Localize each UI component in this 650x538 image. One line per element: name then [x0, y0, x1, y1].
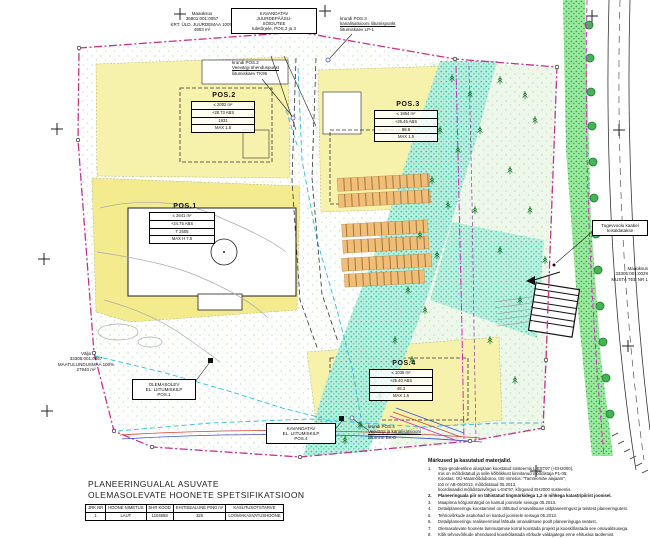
parcel-label-e: Maaüksus 33305:001:0029 MUSTA TEE NR 1	[596, 266, 648, 282]
el-cabinet-pos4-box: KAVANDATAV EL. LIITUMISKILP POS.4	[266, 423, 336, 444]
note-number: 2.	[428, 493, 435, 498]
note-number: 6.	[428, 519, 435, 524]
pos3-label: POS.3	[380, 102, 436, 107]
note-item: 1. Topo-geodeetiline alusplaan koostatud…	[428, 466, 648, 491]
pos3-spec-row: MAX 1.5	[375, 133, 437, 141]
note-item: 7. Olemasolevate hoonete lammutamise kor…	[428, 526, 648, 531]
site-plan-sheet: Maaüksus 36801:001:0057 KRT. ÜLD. JUURDE…	[0, 0, 650, 538]
spec-header-cell: EHR KOOD	[146, 505, 173, 513]
parcel-w-area: 27940 m²	[44, 367, 128, 372]
note-text: Planeeringuala piir on tähistatud tingmä…	[438, 493, 612, 498]
pos3-spec-table: ≤ 1854 m² +26.45 ABS 88.8 MAX 1.5	[374, 110, 438, 142]
sheet-title: PLANEERINGUALAL ASUVATE OLEMASOLEVATE HO…	[88, 479, 348, 501]
water-pos4-line: liitumine BK-0	[368, 435, 460, 440]
pos1-spec-row: T 2505	[150, 228, 214, 236]
spec-cell: 1104658	[146, 512, 173, 520]
pos3-spec-row: +26.45 ABS	[375, 118, 437, 126]
spec-cell: LAUT	[106, 512, 146, 520]
site-plan-drawing	[0, 0, 650, 538]
pos1-spec-row: ≤ 2641 m²	[150, 213, 214, 220]
notes-block: Märkused ja kasutatud materjalid. 1. Top…	[428, 459, 648, 538]
spec-cell: 325	[173, 512, 225, 520]
spec-header-cell: KASUTUSOTSTARVE	[226, 505, 283, 513]
water-connection-label-pos2: krundi POS.2 Veevärgi ühenduspunkt liitu…	[232, 60, 304, 76]
note-text: Maapinna kõrgusmärgid on kantud joonisel…	[438, 500, 556, 505]
pos1-spec-row: +24.75 ABS	[150, 220, 214, 228]
note-number: 7.	[428, 526, 435, 531]
pos4-spec-row: 48.3	[370, 385, 432, 393]
note-text: Detailplaneeringu koostamisel on lähtutu…	[438, 506, 628, 511]
water-pos2-line: liitumiskaev TK95	[232, 71, 304, 76]
spec-cell: 1	[86, 512, 106, 520]
access-road-callout-box: KAVANDATAV JUURDEPÄÄSU- SÕIDUTEE tuletõr…	[231, 8, 317, 34]
note-item: 5. Tehnovõrkude asukohad on kantud jooni…	[428, 513, 648, 518]
el-cabinet-pos4-symbol	[339, 416, 344, 421]
note-number: 3.	[428, 500, 435, 505]
note-number: 8.	[428, 532, 435, 537]
spec-header-cell: HOONE NIMETUS	[106, 505, 146, 513]
sewer-pos3-line: liitumiskaev LP-1	[340, 27, 422, 32]
pos4-label: POS.4	[376, 361, 432, 366]
el-cabinet-pos1-box: OLEMASOLEV EL. LIITUMISKILP POS.1	[132, 379, 196, 400]
spec-header-row: JRK NR HOONE NIMETUS EHR KOOD EHITISEALU…	[86, 505, 284, 513]
water-connection-label-pos4: krundi POS.4 Veevärgi ja kanalisatsiooni…	[368, 424, 460, 440]
pos3-spec-row: ≤ 1854 m²	[375, 111, 437, 118]
pos2-spec-row: +28.73 ABS	[192, 109, 254, 117]
note-item: 8. Kõik tehnovõrkude ühendused kooskõlas…	[428, 532, 648, 537]
pos2-spec-row: ≤ 2002 m²	[192, 102, 254, 109]
cabinet-pos1-line: POS.1	[135, 392, 193, 397]
parcel-e-road: MUSTA TEE NR 1	[596, 277, 648, 282]
spec-header-cell: JRK NR	[86, 505, 106, 513]
pos2-spec-row: MAX 1.5	[192, 124, 254, 132]
note-text: Topo-geodeetiline alusplaan koostatud sü…	[438, 466, 573, 491]
pos2-spec-row: 1931	[192, 117, 254, 125]
note-item: 4. Detailplaneeringu koostamisel on läht…	[428, 506, 648, 511]
el-cabinet-pos1-symbol	[208, 358, 213, 363]
pos1-spec-row: MAX H 7.5	[150, 235, 214, 243]
pos1-spec-table: ≤ 2641 m² +24.75 ABS T 2505 MAX H 7.5	[149, 212, 215, 244]
note-text: Tehnovõrkude asukohad on kantud joonisel…	[438, 513, 557, 518]
pos2-spec-table: ≤ 2002 m² +28.73 ABS 1931 MAX 1.5	[191, 101, 255, 133]
parcel-label-w: Välja 33305:001:0067 MAATULUNDUSMAA 100%…	[44, 351, 128, 372]
note-text: Detailplaneeringu realiseerimisel lähtud…	[438, 519, 597, 524]
note-number: 4.	[428, 506, 435, 511]
pos4-spec-row: ≤ 1035 m²	[370, 370, 432, 377]
sheet-title-line1: PLANEERINGUALAL ASUVATE	[88, 479, 348, 490]
note-line: Koostas: OÜ Maamõõdubüroo, töö nimetus: …	[438, 476, 573, 481]
note-item: 6. Detailplaneeringu realiseerimisel läh…	[428, 519, 648, 524]
pos4-spec-row: +25.40 ABS	[370, 377, 432, 385]
parking-block	[529, 283, 580, 337]
note-item: 2. Planeeringuala piir on tähistatud tin…	[428, 493, 648, 498]
spec-data-row: 1 LAUT 1104658 325 LOOMAKASVATUSHOONE	[86, 512, 284, 520]
pos2-label: POS.2	[196, 93, 252, 98]
access-box-line: tuletõrjele, POS.2 ja 3	[234, 26, 314, 31]
spec-cell: LOOMAKASVATUSHOONE	[226, 512, 283, 520]
cable-box-line: teisaldatakse	[595, 228, 645, 233]
sheet-title-line2: OLEMASOLEVATE HOONETE SPETSIFIKATSIOON	[88, 490, 348, 501]
sewer-connection-label-pos3: krundi POS.3 kanalisatsiooni liitumispun…	[340, 16, 422, 32]
power-cable-callout-box: Tugevvoolu kaabel teisaldatakse	[592, 220, 648, 236]
building-spec-table: JRK NR HOONE NIMETUS EHR KOOD EHITISEALU…	[85, 504, 284, 521]
note-line: koordinaadid mõõdistusvõrgus L-Est'97, k…	[438, 487, 573, 492]
pos4-spec-table: ≤ 1035 m² +25.40 ABS 48.3 MAX 1.5	[369, 369, 433, 401]
spec-header-cell: EHITISEALUNE PIND m²	[173, 505, 225, 513]
road-edges	[608, 0, 650, 473]
cabinet-pos4-line: POS.4	[269, 436, 333, 441]
note-number: 1.	[428, 466, 435, 491]
note-item: 3. Maapinna kõrgusmärgid on kantud jooni…	[428, 500, 648, 505]
notes-heading: Märkused ja kasutatud materjalid.	[428, 459, 648, 464]
note-number: 5.	[428, 513, 435, 518]
note-text: Kõik tehnovõrkude ühendused kooskõlastad…	[438, 532, 614, 537]
pos1-label: POS.1	[155, 204, 215, 209]
note-text: Olemasolevate hoonete lammutamise korral…	[438, 526, 628, 531]
pos3-spec-row: 88.8	[375, 126, 437, 134]
pos4-spec-row: MAX 1.5	[370, 392, 432, 400]
